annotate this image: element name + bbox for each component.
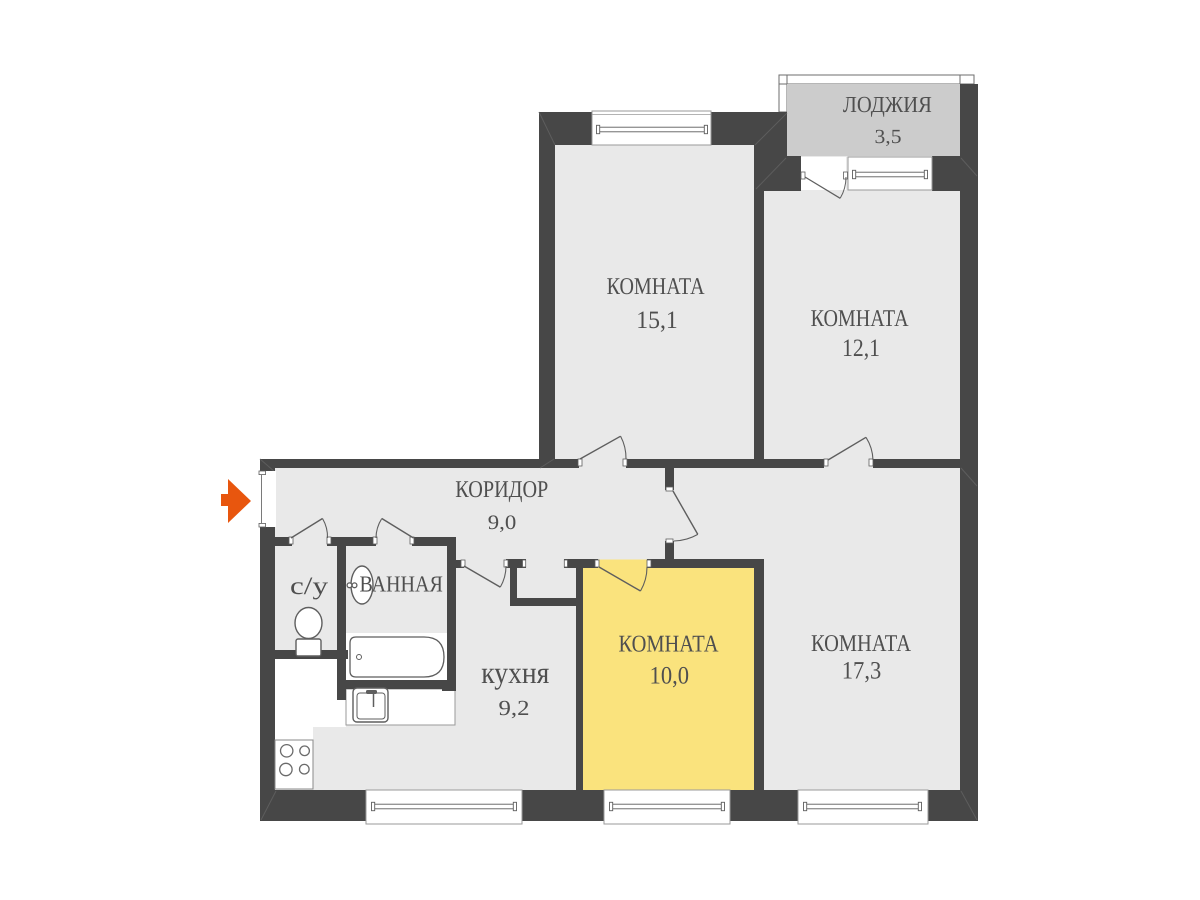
svg-text:ЛОДЖИЯ: ЛОДЖИЯ — [843, 92, 932, 117]
svg-text:9,2: 9,2 — [499, 696, 530, 720]
svg-text:15,1: 15,1 — [636, 307, 678, 334]
svg-text:9,0: 9,0 — [488, 512, 517, 534]
svg-text:кухня: кухня — [481, 655, 549, 690]
svg-text:КОМНАТА: КОМНАТА — [607, 274, 706, 300]
svg-text:КОРИДОР: КОРИДОР — [455, 477, 548, 503]
svg-text:17,3: 17,3 — [842, 658, 882, 685]
svg-text:с/у: с/у — [290, 573, 329, 600]
svg-text:КОМНАТА: КОМНАТА — [811, 306, 910, 332]
svg-text:ВАННАЯ: ВАННАЯ — [359, 572, 443, 597]
svg-text:10,0: 10,0 — [650, 663, 690, 690]
svg-text:12,1: 12,1 — [842, 335, 880, 362]
svg-text:КОМНАТА: КОМНАТА — [811, 631, 912, 657]
svg-text:3,5: 3,5 — [875, 126, 902, 148]
svg-text:КОМНАТА: КОМНАТА — [619, 632, 720, 658]
